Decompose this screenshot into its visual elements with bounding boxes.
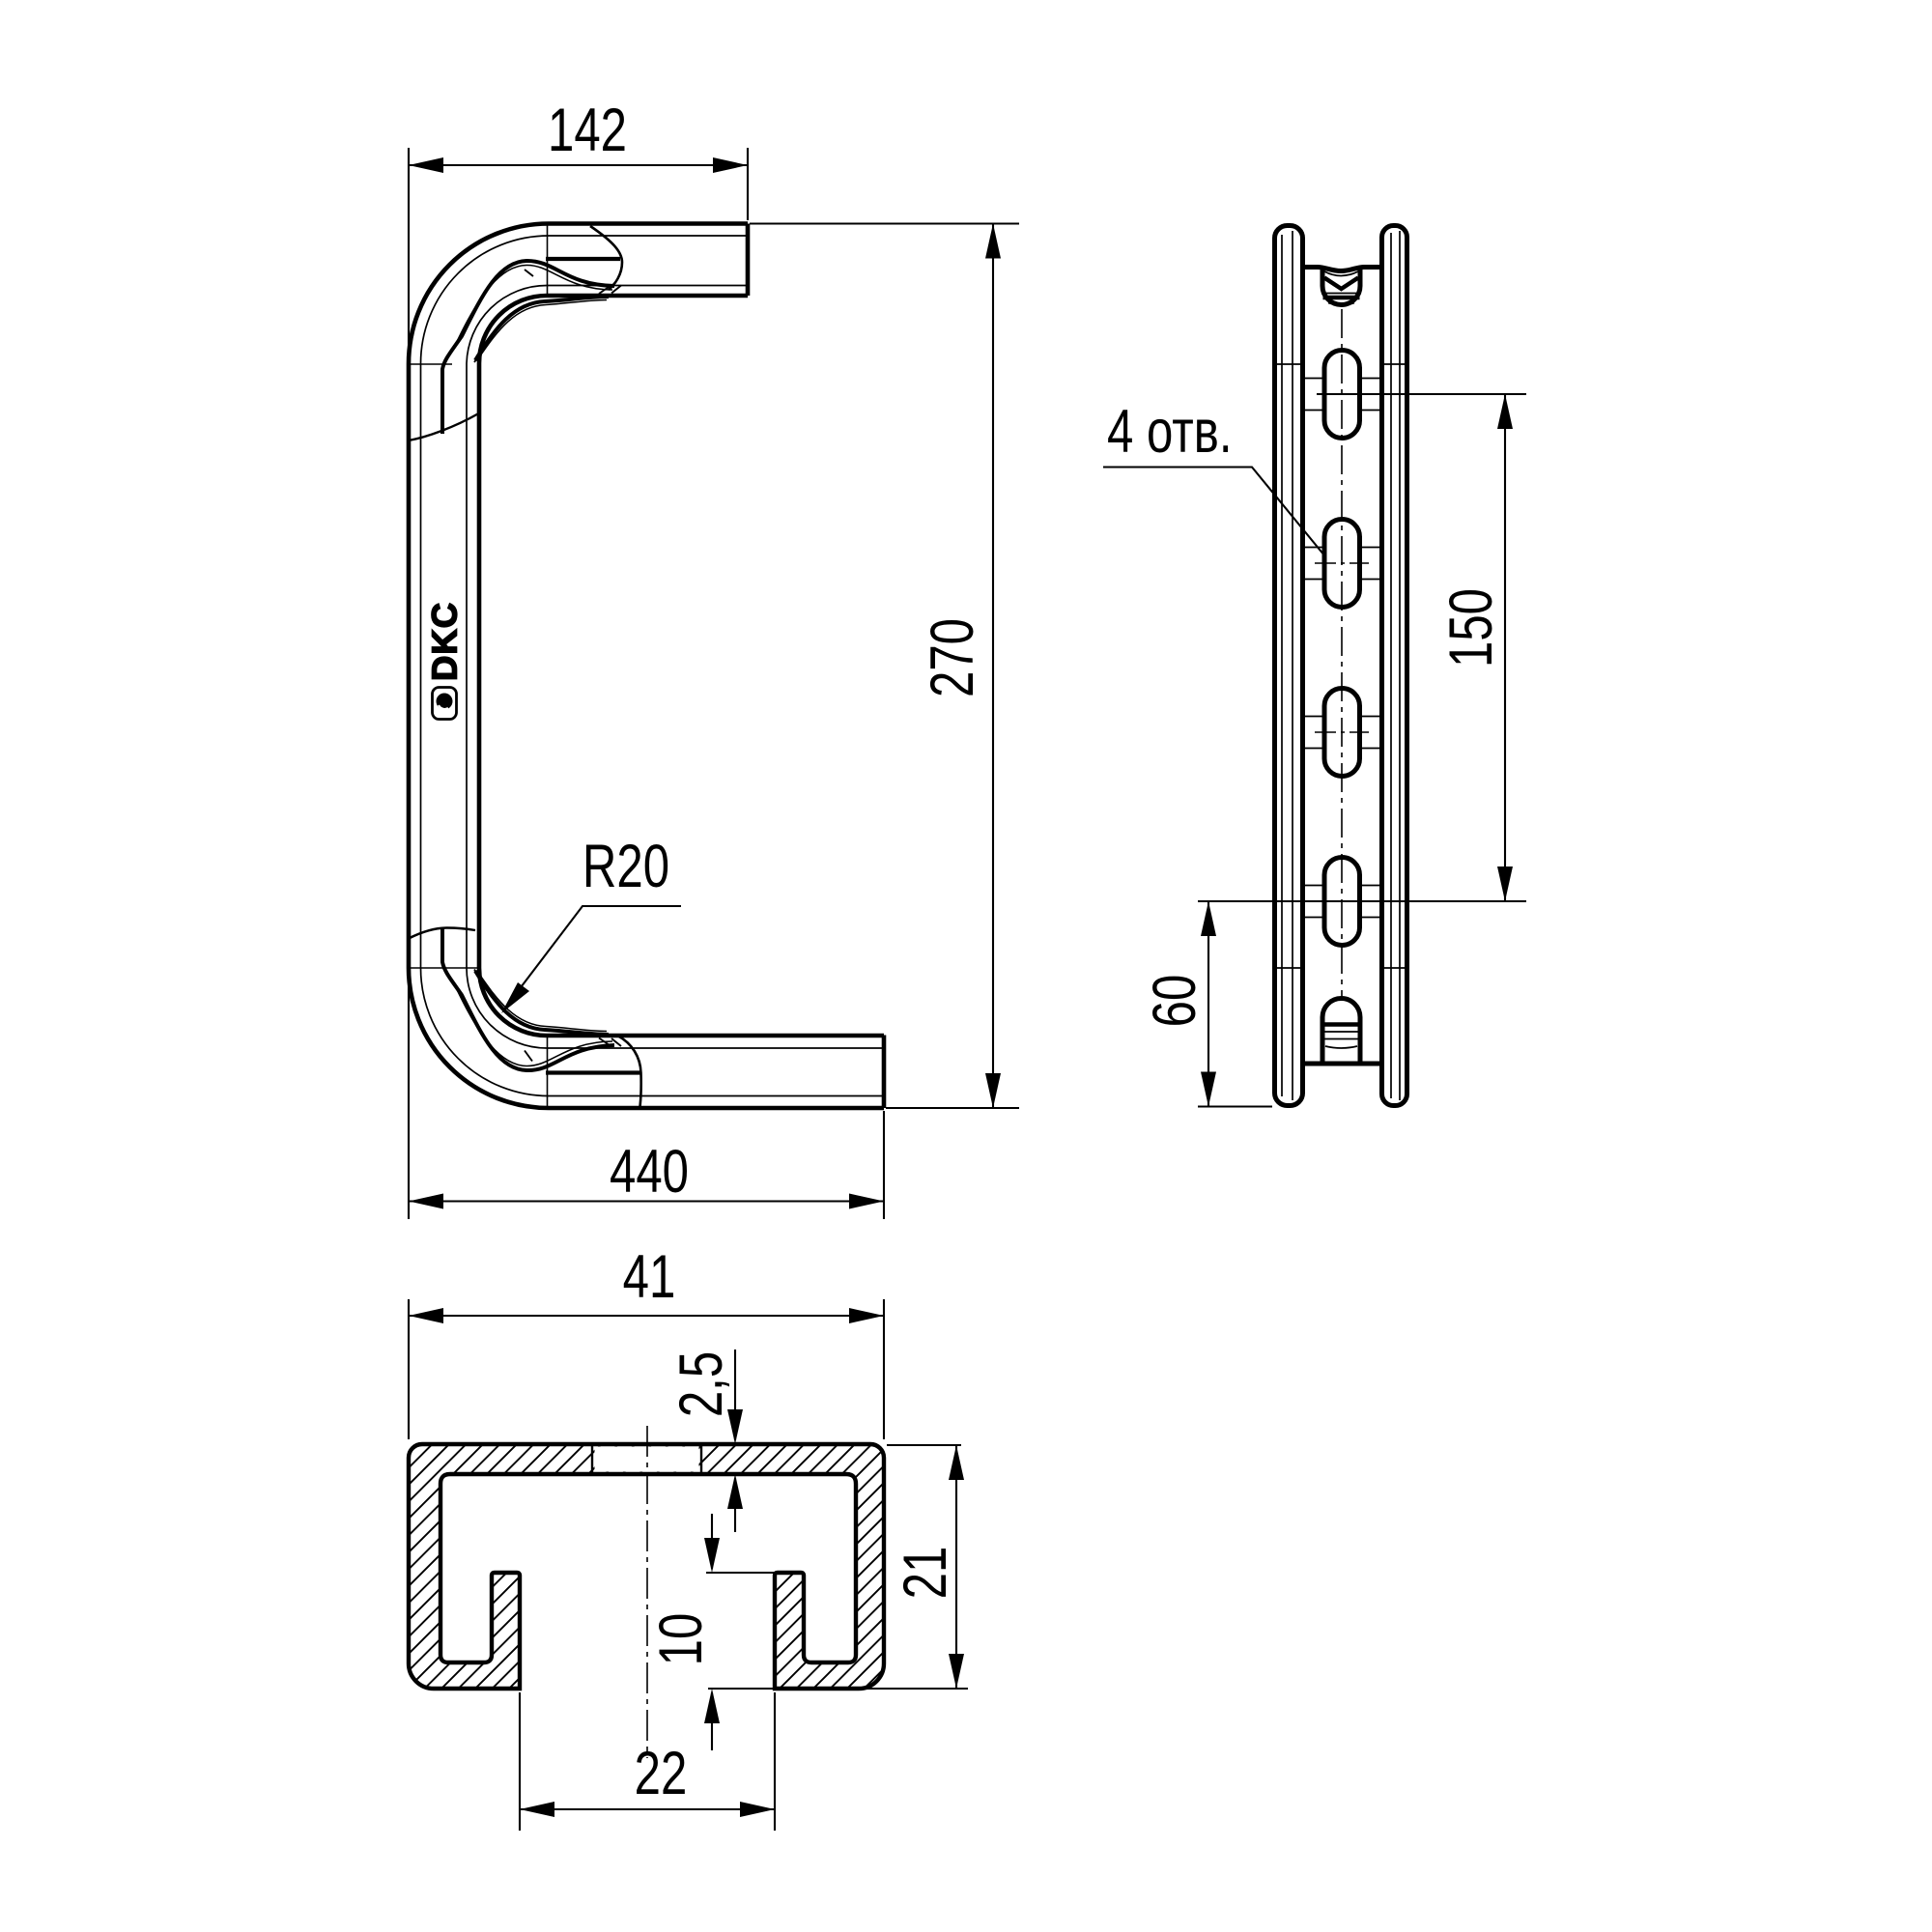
svg-text:21: 21 <box>891 1547 958 1600</box>
svg-text:4 отв.: 4 отв. <box>1107 397 1232 465</box>
svg-text:150: 150 <box>1436 588 1504 668</box>
svg-text:270: 270 <box>918 618 985 697</box>
svg-text:440: 440 <box>610 1137 689 1205</box>
svg-text:60: 60 <box>1140 975 1207 1028</box>
svg-text:DKC: DKC <box>425 602 465 681</box>
svg-text:41: 41 <box>623 1242 676 1310</box>
svg-text:2,5: 2,5 <box>667 1351 734 1417</box>
svg-text:R20: R20 <box>582 832 669 899</box>
svg-text:22: 22 <box>635 1739 688 1806</box>
svg-text:10: 10 <box>646 1613 714 1666</box>
svg-text:142: 142 <box>548 96 627 163</box>
